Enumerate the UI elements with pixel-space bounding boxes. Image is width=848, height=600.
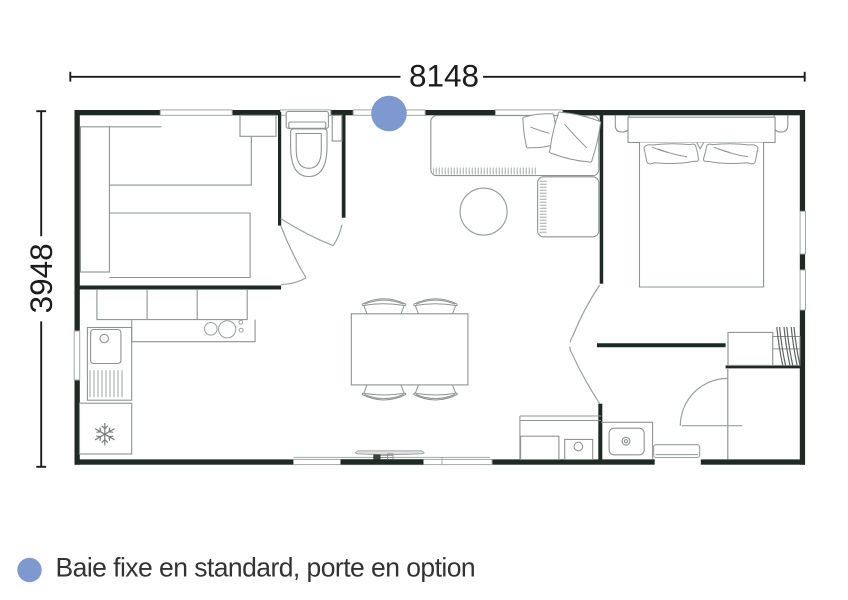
- svg-text:Baie fixe en standard, porte e: Baie fixe en standard, porte en option: [56, 553, 476, 583]
- svg-text:8148: 8148: [409, 58, 479, 94]
- svg-text:3948: 3948: [23, 243, 59, 313]
